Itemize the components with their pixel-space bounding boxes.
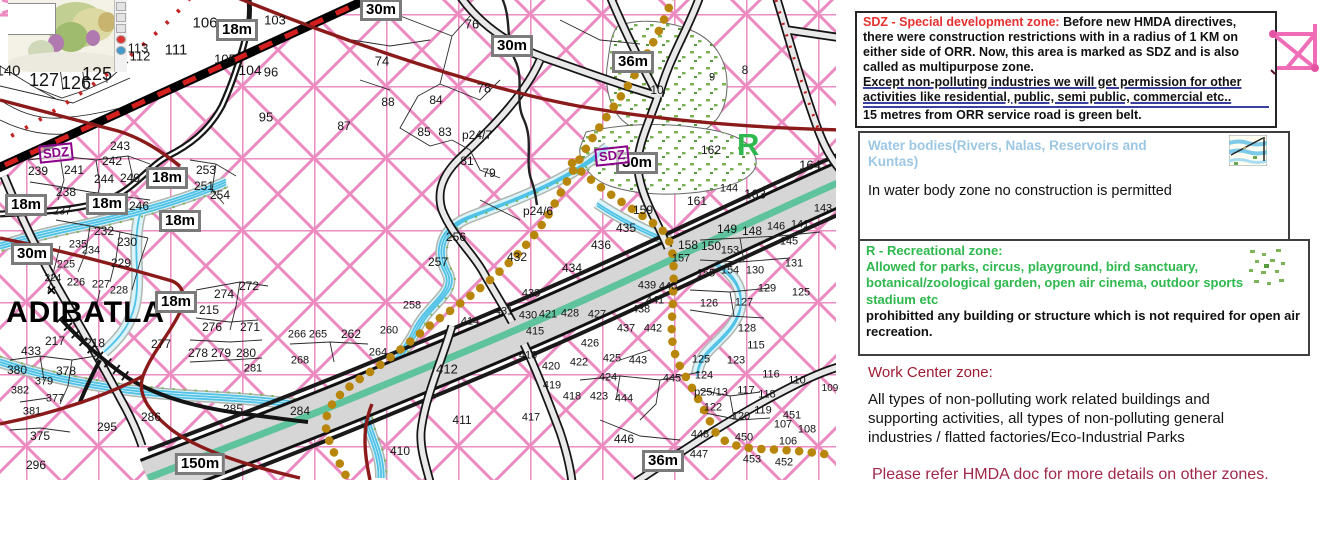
water-box-body: In water body zone no construction is pe…: [868, 183, 1280, 199]
recreation-box-allowed: Allowed for parks, circus, playground, b…: [866, 259, 1258, 308]
sdz-hatch-icon: [1267, 20, 1323, 76]
sdz-box-footer: 15 metres from ORR service road is green…: [863, 106, 1269, 123]
sdz-info-box: SDZ - Special development zone: Before n…: [855, 11, 1277, 128]
water-sample-icon: [1229, 135, 1267, 166]
work-center-body: All types of non-polluting work related …: [868, 390, 1236, 447]
recreation-box-title: R - Recreational zone:: [866, 243, 1302, 259]
sdz-box-underlined: Except non-polluting industries we will …: [863, 75, 1242, 104]
water-box-title: Water bodies(Rivers, Nalas, Reservoirs a…: [868, 138, 1188, 170]
overview-inset-map: [8, 0, 127, 72]
water-info-box: Water bodies(Rivers, Nalas, Reservoirs a…: [858, 131, 1290, 245]
screenshot-root: ADIBATLA R ✕ 106103113111112105104969512…: [0, 0, 1340, 558]
work-center-title: Work Center zone:: [868, 364, 993, 381]
recreation-info-box: R - Recreational zone: Allowed for parks…: [858, 239, 1310, 356]
inset-label-box: [8, 3, 56, 35]
map-drawing: [0, 0, 836, 480]
sdz-box-title: SDZ - Special development zone:: [863, 15, 1060, 29]
recreation-speckle-icon: [1246, 247, 1288, 291]
zoning-map-image: ADIBATLA R ✕ 106103113111112105104969512…: [0, 0, 836, 480]
refer-note: Please refer HMDA doc for more details o…: [872, 466, 1269, 484]
recreation-box-prohibited: prohibitted any building or structure wh…: [866, 308, 1302, 340]
inset-toolbar: [114, 0, 127, 72]
